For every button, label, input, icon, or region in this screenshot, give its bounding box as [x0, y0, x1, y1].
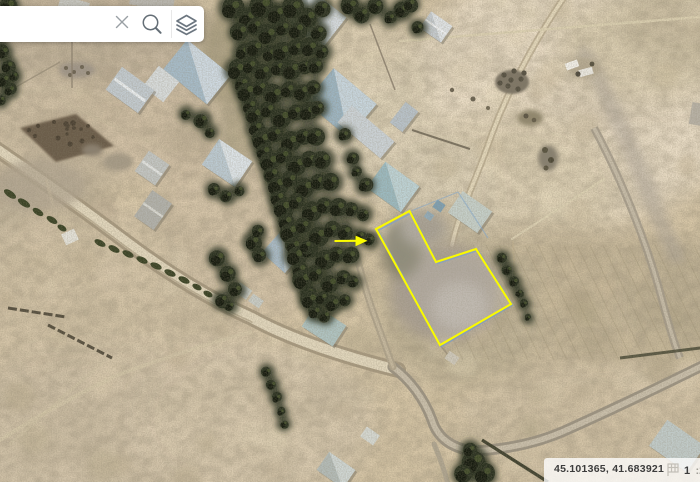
svg-text:1: 1	[684, 465, 690, 477]
svg-text::2: :2	[696, 465, 700, 477]
